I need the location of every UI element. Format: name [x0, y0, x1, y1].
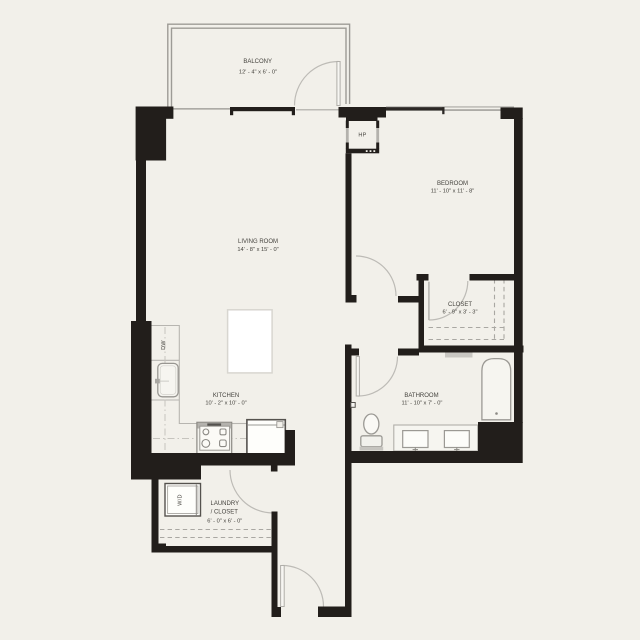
svg-text:LAUNDRY: LAUNDRY: [211, 501, 240, 507]
svg-text:DW: DW: [161, 340, 167, 350]
svg-text:BALCONY: BALCONY: [243, 59, 272, 65]
svg-text:11' - 10" x 11' - 8": 11' - 10" x 11' - 8": [431, 188, 475, 194]
svg-text:LIVING ROOM: LIVING ROOM: [238, 239, 278, 245]
svg-text:BEDROOM: BEDROOM: [437, 181, 468, 187]
svg-text:6' - 9" x 3' - 3": 6' - 9" x 3' - 3": [443, 310, 478, 316]
svg-text:6' - 0" x 6' - 0": 6' - 0" x 6' - 0": [207, 518, 242, 524]
svg-text:W/D: W/D: [178, 494, 184, 506]
svg-text:BATHROOM: BATHROOM: [404, 393, 438, 399]
svg-text:14' - 8" x 15' - 0": 14' - 8" x 15' - 0": [237, 247, 278, 253]
svg-text:10' - 2" x 10' - 0": 10' - 2" x 10' - 0": [205, 401, 246, 407]
svg-text:12' - 4" x 6' - 0": 12' - 4" x 6' - 0": [239, 69, 277, 75]
svg-text:11' - 10" x 7' - 0": 11' - 10" x 7' - 0": [402, 401, 443, 407]
svg-text:CLOSET: CLOSET: [448, 302, 472, 308]
svg-text:/ CLOSET: / CLOSET: [211, 509, 239, 515]
svg-text:HP: HP: [358, 132, 366, 138]
svg-text:KITCHEN: KITCHEN: [213, 393, 239, 399]
